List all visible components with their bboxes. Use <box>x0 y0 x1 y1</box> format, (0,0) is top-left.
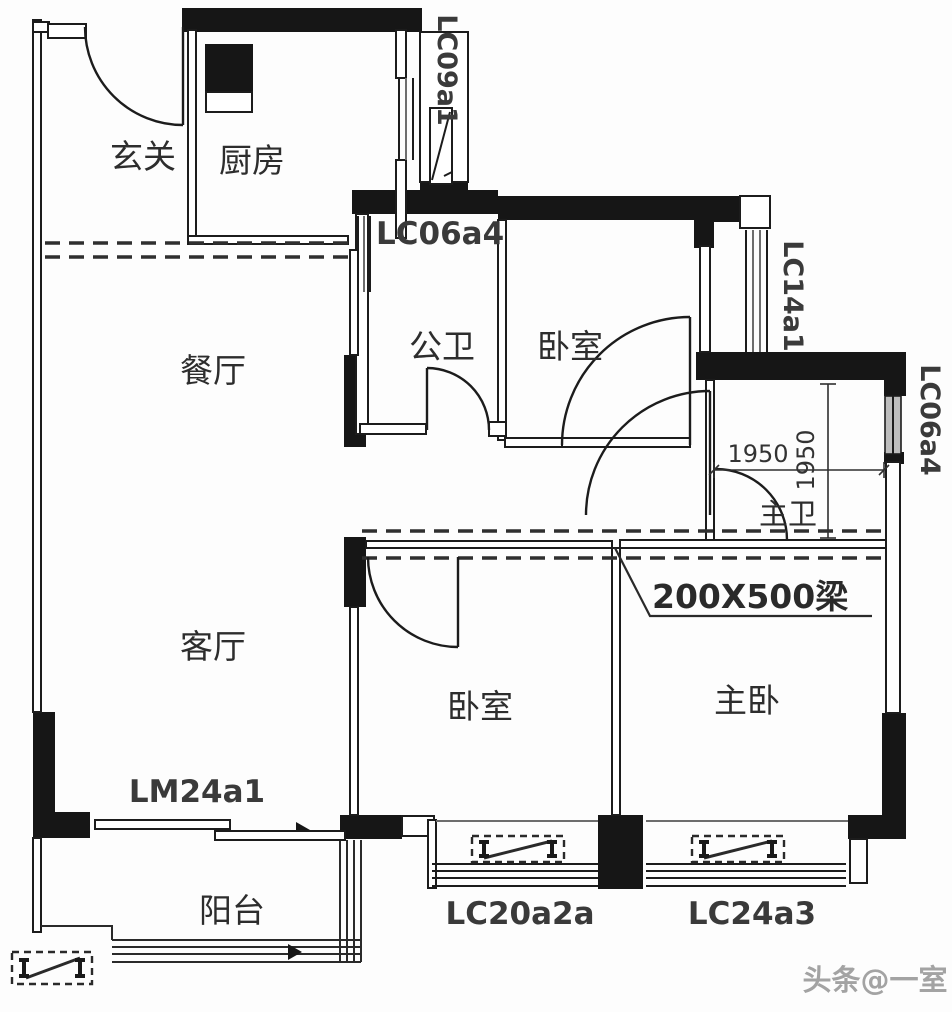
bay-window-left <box>428 820 598 888</box>
entry-door <box>85 27 183 125</box>
kitchen-flue-column <box>205 44 253 92</box>
room-label-dining: 餐厅 <box>180 351 246 390</box>
window-bath-master <box>885 396 901 454</box>
wall <box>884 380 906 396</box>
room-label-bath-master: 主卫 <box>759 497 817 531</box>
entry-door-jamb <box>48 24 86 38</box>
wall <box>694 222 714 248</box>
code-bath-master-window: LC06a4 <box>914 364 945 476</box>
room-label-bedroom-master: 主卧 <box>714 681 780 720</box>
hallway-door <box>586 391 710 515</box>
window-recess <box>740 196 770 228</box>
kitchen-counter <box>206 92 252 112</box>
door-threshold <box>562 438 690 447</box>
code-kitchen-shaft-window: LC09a1 <box>431 14 462 126</box>
room-label-bath-common: 公卫 <box>409 327 475 366</box>
outer-wall-right <box>886 462 900 713</box>
wall <box>696 352 906 380</box>
bath-common-door <box>427 368 489 430</box>
wall <box>340 815 402 839</box>
wall <box>33 22 49 32</box>
floor-plan-drawing: 1950 1950 200X500梁 玄关 厨房 餐厅 客厅 阳台 公卫 卧室 … <box>0 0 952 1012</box>
room-label-living: 客厅 <box>180 627 246 666</box>
bath-common-bottom-wall <box>360 424 426 434</box>
wall-column-right <box>882 713 906 823</box>
window-bedroom-top <box>746 230 767 352</box>
bay-corner <box>850 839 867 883</box>
code-bath-common-window: LC06a4 <box>376 216 504 252</box>
window-kitchen-shaft <box>399 78 413 160</box>
bedroom-master-top-wall <box>620 540 886 548</box>
wall <box>694 196 744 222</box>
room-label-kitchen: 厨房 <box>219 141 285 180</box>
wall <box>33 812 90 838</box>
watermark-text: 头条@一室 <box>802 963 947 997</box>
bay-window-right <box>646 821 848 886</box>
wall-column-left <box>33 712 55 814</box>
wall <box>352 190 498 214</box>
ac-unit-symbol <box>12 952 92 984</box>
kitchen-right-wall <box>396 30 406 78</box>
wall <box>848 815 906 839</box>
floor-plan-page: 1950 1950 200X500梁 玄关 厨房 餐厅 客厅 阳台 公卫 卧室 … <box>0 0 952 1012</box>
code-bay-window-left: LC20a2a <box>445 896 594 932</box>
code-balcony-sliding-door: LM24a1 <box>129 774 265 810</box>
ac-unit-symbol <box>692 836 784 862</box>
bedrooms-divider-wall <box>612 548 620 815</box>
code-bay-window-right: LC24a3 <box>688 896 816 932</box>
balcony-left-wall <box>33 838 41 932</box>
bedroom-top-right-wall <box>700 246 710 352</box>
room-label-bedroom-top: 卧室 <box>537 327 603 366</box>
living-right-wall <box>350 250 358 355</box>
beam-note-label: 200X500梁 <box>652 577 848 616</box>
wall <box>182 8 422 32</box>
door-jamb <box>489 422 506 436</box>
sliding-door-balcony <box>95 820 345 840</box>
kitchen-left-wall <box>188 30 196 238</box>
living-right-wall <box>350 607 358 815</box>
bedroom-top-bottom-wall <box>505 438 563 447</box>
room-label-balcony: 阳台 <box>199 891 265 930</box>
bay-separator-column <box>598 815 643 889</box>
dim-bath-width: 1950 <box>727 440 788 468</box>
room-label-foyer: 玄关 <box>110 137 176 176</box>
wall <box>344 537 366 607</box>
bedroom-mid-door <box>368 557 458 647</box>
outer-wall-left <box>33 20 41 712</box>
wall <box>498 196 716 220</box>
bedroom-mid-top-wall <box>366 541 612 548</box>
bath-bedroom-divider-wall <box>498 220 506 440</box>
ac-unit-symbol <box>472 836 564 862</box>
dim-bath-depth: 1950 <box>792 429 820 490</box>
balcony-structure <box>12 822 361 984</box>
room-label-bedroom-mid: 卧室 <box>447 687 513 726</box>
code-bedroom-top-window: LC14a1 <box>777 240 808 352</box>
